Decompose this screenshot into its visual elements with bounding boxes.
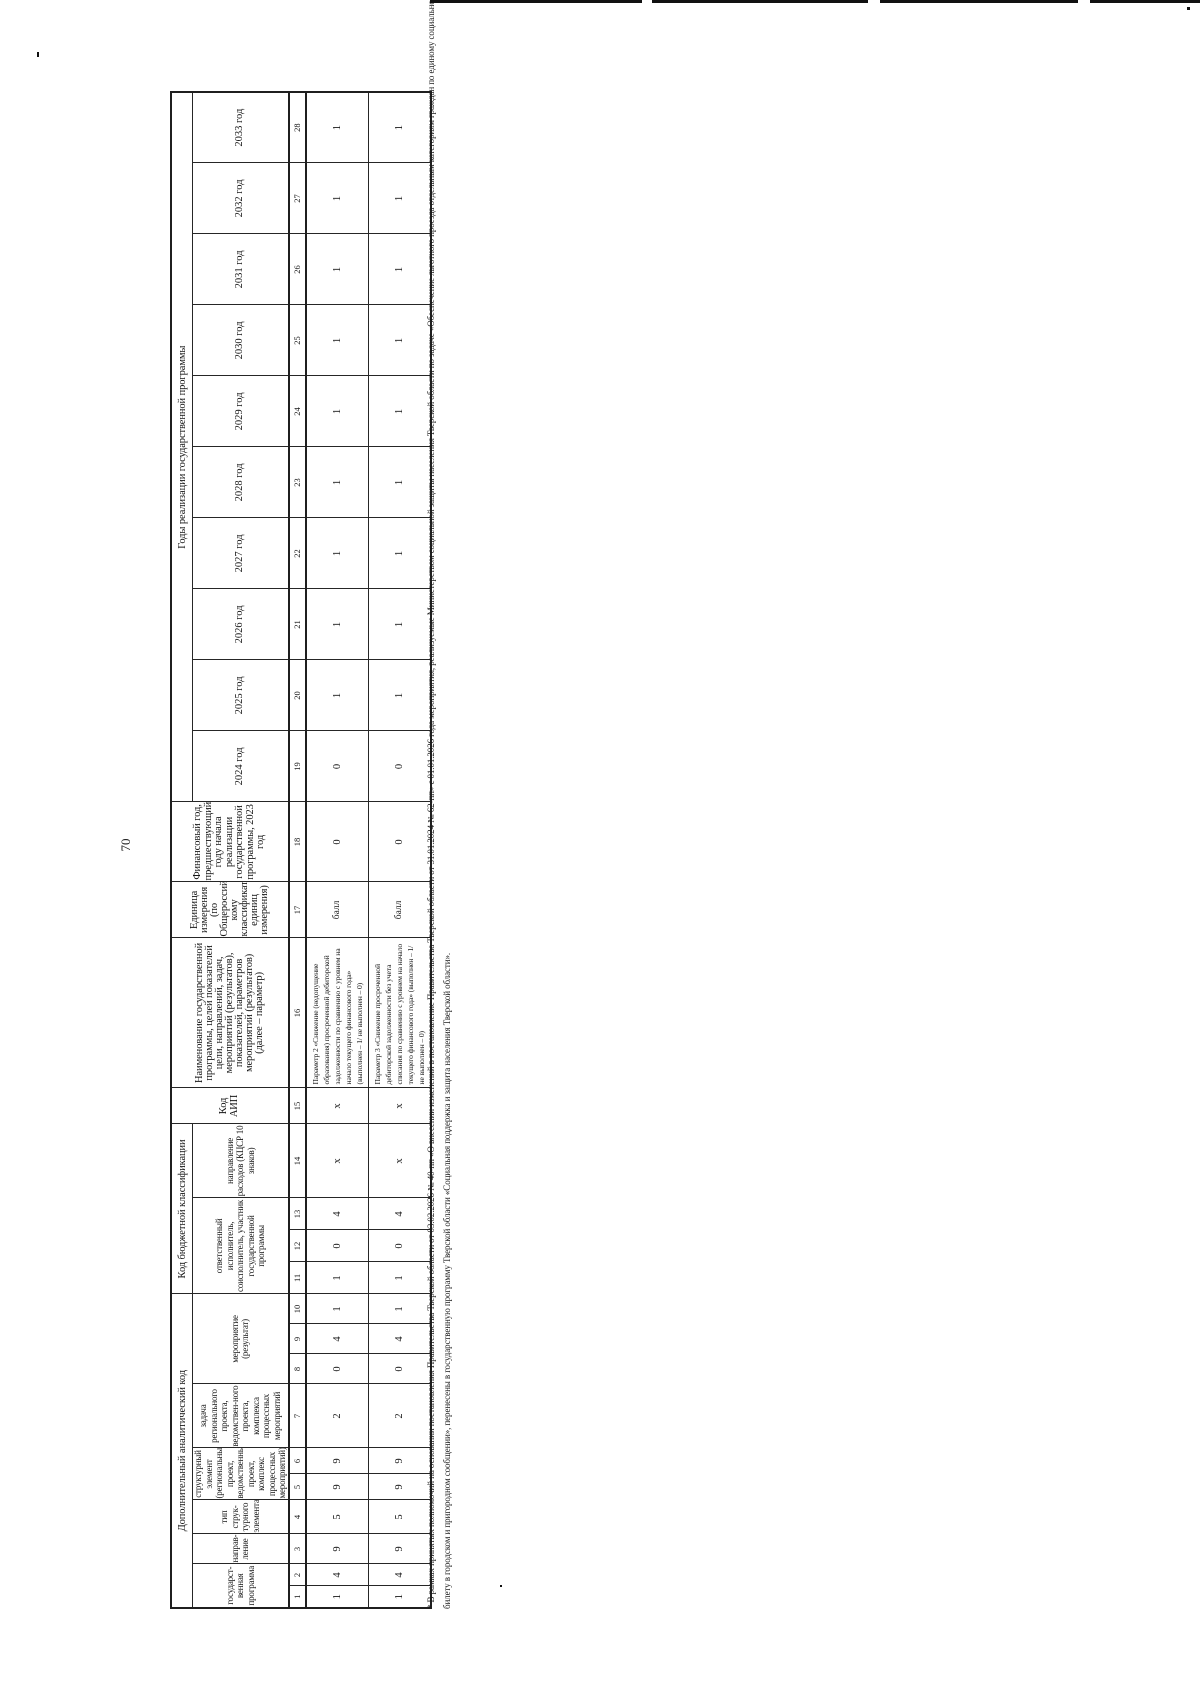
column-number-cell: 8: [289, 1354, 306, 1384]
column-number-cell: 11: [289, 1262, 306, 1294]
data-cell: 1: [306, 660, 369, 731]
scanned-document-page: 70 Дополнительный аналитический код Код …: [0, 0, 1200, 1701]
data-cell: 1: [306, 163, 369, 234]
scan-artifact-dash: [652, 0, 868, 3]
data-cell: 0: [306, 731, 369, 802]
sub-header-executor: ответственный исполнитель, соисполнитель…: [193, 1198, 289, 1294]
data-cell: Параметр 2 «Снижение (недопущение образо…: [306, 938, 369, 1088]
footnote-line-1: * В рамках принятых полномочий на основа…: [426, 69, 436, 1609]
data-cell: 1: [368, 589, 431, 660]
column-number-cell: 18: [289, 802, 306, 882]
column-number-cell: 27: [289, 163, 306, 234]
scan-artifact-speck: [37, 52, 39, 57]
column-number-cell: 12: [289, 1230, 306, 1262]
scan-artifact-dash: [430, 0, 642, 3]
data-cell: 1: [306, 305, 369, 376]
year-header-cell: 2033 год: [193, 92, 289, 163]
data-cell: 1: [368, 1294, 431, 1324]
data-cell: 1: [306, 234, 369, 305]
header-base-year: Финансовый год, предшествующий году нача…: [171, 802, 289, 882]
data-cell: 1: [368, 518, 431, 589]
column-number-cell: 6: [289, 1448, 306, 1474]
group-header-years: Годы реализации государственной программ…: [171, 92, 193, 802]
header-aip-code: Код АИП: [171, 1088, 289, 1124]
data-cell: х: [306, 1124, 369, 1198]
year-header-cell: 2031 год: [193, 234, 289, 305]
year-header-cell: 2029 год: [193, 376, 289, 447]
column-number-cell: 24: [289, 376, 306, 447]
column-number-cell: 4: [289, 1500, 306, 1534]
column-number-cell: 15: [289, 1088, 306, 1124]
data-cell: балл: [368, 882, 431, 938]
scan-artifact-dot: [1187, 7, 1190, 10]
data-cell: 0: [368, 802, 431, 882]
data-cell: 4: [306, 1324, 369, 1354]
year-header-cell: 2030 год: [193, 305, 289, 376]
sub-header-structural-element: структурный элемент (региональный проект…: [193, 1448, 289, 1500]
data-cell: Параметр 3 «Снижение просроченной дебито…: [368, 938, 431, 1088]
data-cell: 5: [306, 1500, 369, 1534]
header-name: Наименование государственной программы, …: [171, 938, 289, 1088]
data-cell: 1: [368, 1262, 431, 1294]
sub-header-event: мероприятие (результат): [193, 1294, 289, 1384]
data-cell: 9: [306, 1534, 369, 1564]
data-cell: 4: [368, 1198, 431, 1230]
data-cell: 4: [368, 1564, 431, 1586]
data-cell: 1: [306, 589, 369, 660]
column-number-cell: 10: [289, 1294, 306, 1324]
column-number-cell: 5: [289, 1474, 306, 1500]
data-cell: 0: [306, 1354, 369, 1384]
data-cell: х: [368, 1088, 431, 1124]
data-cell: 9: [368, 1448, 431, 1474]
group-header-analytic-code: Дополнительный аналитический код: [171, 1294, 193, 1608]
data-cell: 9: [306, 1474, 369, 1500]
column-number-cell: 3: [289, 1534, 306, 1564]
program-table: Дополнительный аналитический код Код бюд…: [170, 91, 432, 1609]
data-cell: 1: [306, 447, 369, 518]
data-cell: 1: [368, 92, 431, 163]
data-cell: 9: [306, 1448, 369, 1474]
group-header-budget-class: Код бюджетной классификации: [171, 1124, 193, 1294]
program-table-wrapper: Дополнительный аналитический код Код бюд…: [170, 91, 432, 1609]
data-cell: 9: [368, 1534, 431, 1564]
column-number-cell: 9: [289, 1324, 306, 1354]
data-cell: 1: [368, 1586, 431, 1608]
column-number-cell: 25: [289, 305, 306, 376]
sub-header-state-program: государст-венная программа: [193, 1564, 289, 1608]
data-cell: 1: [306, 376, 369, 447]
page-number: 70: [118, 825, 134, 865]
data-cell: 1: [368, 660, 431, 731]
year-header-cell: 2025 год: [193, 660, 289, 731]
column-number-cell: 22: [289, 518, 306, 589]
data-cell: 1: [306, 1262, 369, 1294]
data-cell: 0: [368, 1354, 431, 1384]
column-number-cell: 26: [289, 234, 306, 305]
column-number-cell: 7: [289, 1384, 306, 1448]
sub-header-task: задача регионального проекта, ведомствен…: [193, 1384, 289, 1448]
data-cell: 4: [306, 1198, 369, 1230]
data-cell: 1: [368, 234, 431, 305]
column-number-cell: 16: [289, 938, 306, 1088]
column-number-cell: 23: [289, 447, 306, 518]
data-cell: 1: [306, 1294, 369, 1324]
data-cell: балл: [306, 882, 369, 938]
rotated-landscape-sheet: 70 Дополнительный аналитический код Код …: [0, 0, 1200, 1701]
column-number-cell: 17: [289, 882, 306, 938]
year-header-cell: 2026 год: [193, 589, 289, 660]
data-cell: 0: [306, 1230, 369, 1262]
data-cell: 1: [306, 518, 369, 589]
sub-header-expense-direction: направление расходов (КЦСР 10 знаков): [193, 1124, 289, 1198]
data-cell: 0: [306, 802, 369, 882]
footnote-line-2: билету в городском и пригородном сообщен…: [442, 953, 452, 1609]
data-cell: х: [368, 1124, 431, 1198]
column-number-cell: 1: [289, 1586, 306, 1608]
data-cell: х: [306, 1088, 369, 1124]
data-cell: 4: [368, 1324, 431, 1354]
column-number-cell: 20: [289, 660, 306, 731]
column-number-cell: 13: [289, 1198, 306, 1230]
column-number-cell: 2: [289, 1564, 306, 1586]
sub-header-direction: направ-ление: [193, 1534, 289, 1564]
data-cell: 0: [368, 731, 431, 802]
column-number-cell: 14: [289, 1124, 306, 1198]
data-cell: 4: [306, 1564, 369, 1586]
scan-artifact-dash: [880, 0, 1078, 3]
data-cell: 0: [368, 1230, 431, 1262]
year-header-cell: 2032 год: [193, 163, 289, 234]
year-header-cell: 2027 год: [193, 518, 289, 589]
sub-header-element-type: тип струк-турного элемента: [193, 1500, 289, 1534]
data-cell: 1: [306, 1586, 369, 1608]
scan-artifact-dash: [1090, 0, 1200, 3]
data-cell: 1: [368, 163, 431, 234]
year-header-cell: 2024 год: [193, 731, 289, 802]
data-cell: 2: [306, 1384, 369, 1448]
data-cell: 9: [368, 1474, 431, 1500]
column-number-cell: 19: [289, 731, 306, 802]
data-cell: 1: [306, 92, 369, 163]
column-number-cell: 21: [289, 589, 306, 660]
data-cell: 1: [368, 376, 431, 447]
year-header-cell: 2028 год: [193, 447, 289, 518]
scan-artifact-dot: [500, 1585, 502, 1587]
data-cell: 1: [368, 447, 431, 518]
data-cell: 1: [368, 305, 431, 376]
column-number-cell: 28: [289, 92, 306, 163]
data-cell: 2: [368, 1384, 431, 1448]
data-cell: 5: [368, 1500, 431, 1534]
header-unit: Единица измерения (по Общероссийс-кому к…: [171, 882, 289, 938]
